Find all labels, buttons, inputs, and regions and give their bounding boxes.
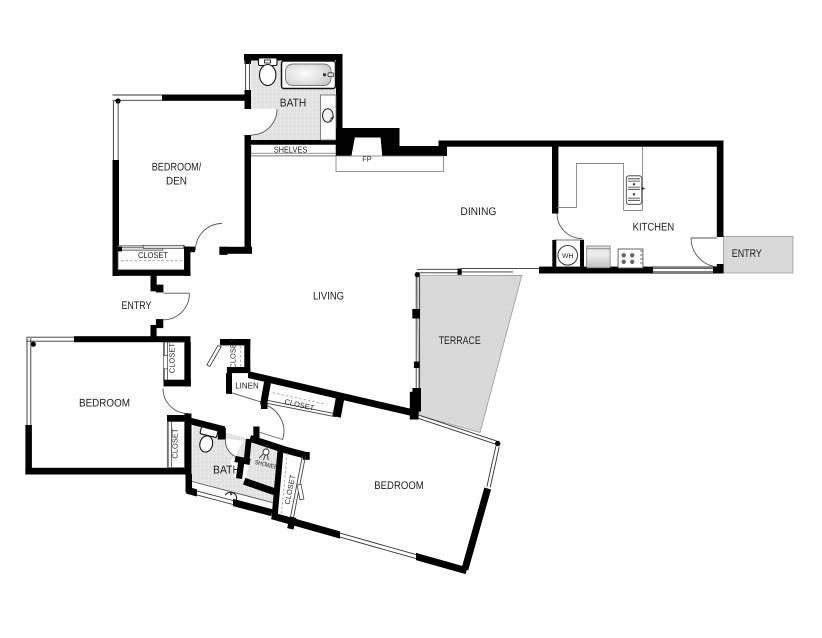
svg-text:BATH: BATH — [280, 97, 307, 109]
svg-text:CLOSET: CLOSET — [229, 338, 238, 369]
svg-text:CLOSET: CLOSET — [171, 428, 180, 459]
svg-text:BEDROOM: BEDROOM — [79, 398, 130, 410]
svg-text:WH: WH — [562, 253, 573, 260]
svg-text:DEN: DEN — [166, 175, 187, 187]
svg-text:CLOSET: CLOSET — [168, 343, 177, 374]
svg-text:CLOSET: CLOSET — [138, 250, 168, 260]
svg-text:LINEN: LINEN — [235, 381, 259, 391]
svg-text:SHELVES: SHELVES — [274, 145, 308, 155]
svg-text:ENTRY: ENTRY — [732, 248, 763, 260]
svg-text:DINING: DINING — [460, 206, 496, 218]
svg-text:BEDROOM/: BEDROOM/ — [152, 161, 202, 173]
svg-text:TERRACE: TERRACE — [439, 335, 481, 347]
svg-text:KITCHEN: KITCHEN — [633, 221, 675, 233]
svg-text:LIVING: LIVING — [313, 291, 344, 303]
svg-text:ENTRY: ENTRY — [122, 300, 153, 312]
svg-text:FP: FP — [362, 155, 372, 164]
svg-text:BEDROOM: BEDROOM — [374, 480, 424, 492]
svg-text:BATH: BATH — [213, 464, 240, 476]
